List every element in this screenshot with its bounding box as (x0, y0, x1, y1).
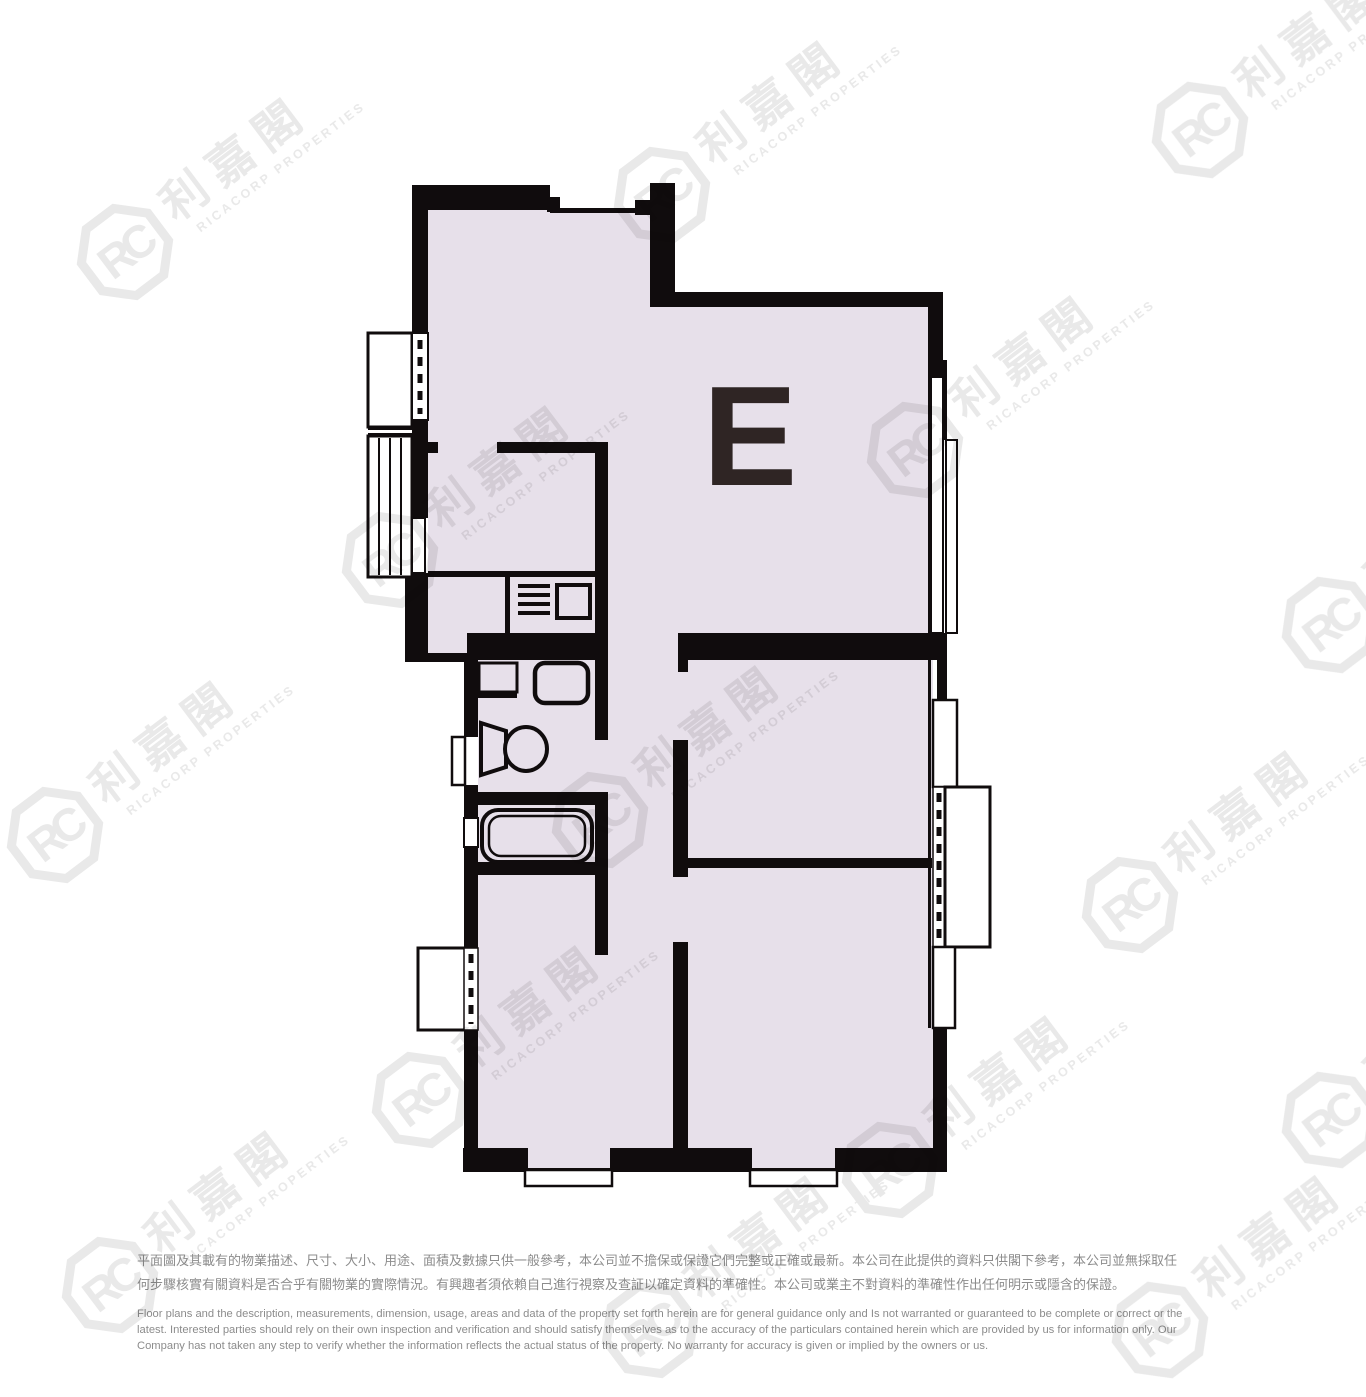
wall-corridor-right-lower (673, 942, 688, 1150)
ac-platform-bottom-left (418, 948, 465, 1030)
kitchen-counter-edge (428, 571, 595, 577)
window-bedroom1-right (933, 700, 957, 787)
disclaimer: 平面圖及其載有的物業描述、尺寸、大小、用途、面積及數據只供一般參考，本公司並不擔… (137, 1249, 1247, 1354)
window-bottom-2 (752, 1148, 835, 1168)
wall-kitchen-top (497, 442, 607, 453)
disclaimer-line-zh: 何步驟核實有關資料是否合乎有關物業的實際情況。有興趣者須依賴自己進行視察及查証以… (137, 1273, 1247, 1297)
window-bottom-1 (528, 1148, 610, 1168)
wall-left (412, 210, 428, 333)
wall-bedroom-divider (688, 858, 932, 868)
ac-platform-top-left (368, 333, 412, 427)
disclaimer-line-zh: 平面圖及其載有的物業描述、尺寸、大小、用途、面積及數據只供一般參考，本公司並不擔… (137, 1249, 1247, 1273)
wall-living-bottom (678, 633, 947, 660)
window-toilet (452, 737, 465, 785)
window-living-right (931, 377, 943, 633)
wall-kitchen-bottom (467, 633, 607, 660)
toilet-bowl-icon (505, 727, 547, 771)
floorplan-page: { "watermark": { "brand_cn": "利嘉閣", "bra… (0, 0, 1366, 1366)
disclaimer-line-en: latest. Interested parties should rely o… (137, 1322, 1247, 1338)
wall-kitchen-right (595, 442, 608, 740)
wall-top-pier (650, 183, 675, 307)
unit-label: E (703, 357, 798, 516)
disclaimer-line-en: Company has not taken any step to verify… (137, 1338, 1247, 1354)
wall-corridor-right-upper (673, 740, 688, 877)
wall-top (412, 185, 550, 210)
wall-top-right (673, 292, 943, 307)
disclaimer-line-en: Floor plans and the description, measure… (137, 1306, 1247, 1322)
wall-bathroom-divider (477, 792, 599, 805)
floorplan-drawing: E (0, 0, 1366, 1366)
ac-platform-right (945, 787, 990, 947)
vent-bath (464, 818, 478, 847)
window-left-kitchen (412, 518, 425, 573)
